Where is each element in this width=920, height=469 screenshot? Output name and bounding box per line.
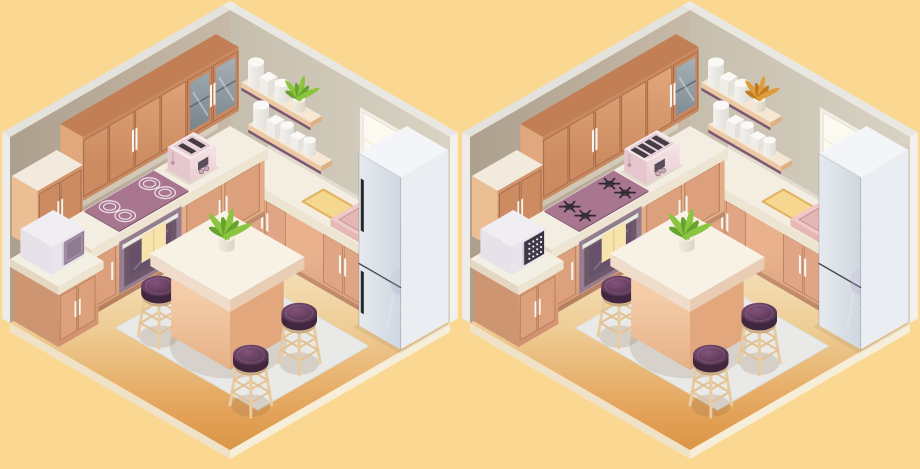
stool-right [279,303,321,375]
door-handle [344,258,346,277]
door-handle [79,298,81,315]
kitchen-illustration[interactable] [460,0,920,469]
door-handle [266,213,268,232]
door-handle [213,82,215,105]
kitchen-illustration[interactable] [0,0,460,469]
door-handle [804,258,806,277]
kitchen-room [2,1,458,459]
door-handle [571,261,573,280]
door-handle [111,261,113,280]
kitchen-left-panel[interactable] [0,0,460,469]
door-handle [539,298,541,315]
stool-front [230,345,272,417]
door-handle [135,127,137,150]
door-handle [799,255,801,274]
door-handle [670,84,672,107]
door-handle [521,198,523,217]
kitchen-right-panel[interactable] [460,0,920,469]
spot-the-difference-stage [0,0,920,469]
door-handle [339,255,341,274]
door-handle [673,82,675,105]
stool-front [690,345,732,417]
fridge[interactable] [353,126,450,354]
door-handle [210,84,212,107]
fridge[interactable] [813,126,910,354]
door-handle [535,301,537,318]
door-handle [61,198,63,217]
stool-right [739,303,781,375]
door-handle [132,129,134,152]
door-handle [75,301,77,318]
kitchen-room [462,1,918,459]
door-handle [595,127,597,150]
door-handle [592,129,594,152]
door-handle [726,213,728,232]
